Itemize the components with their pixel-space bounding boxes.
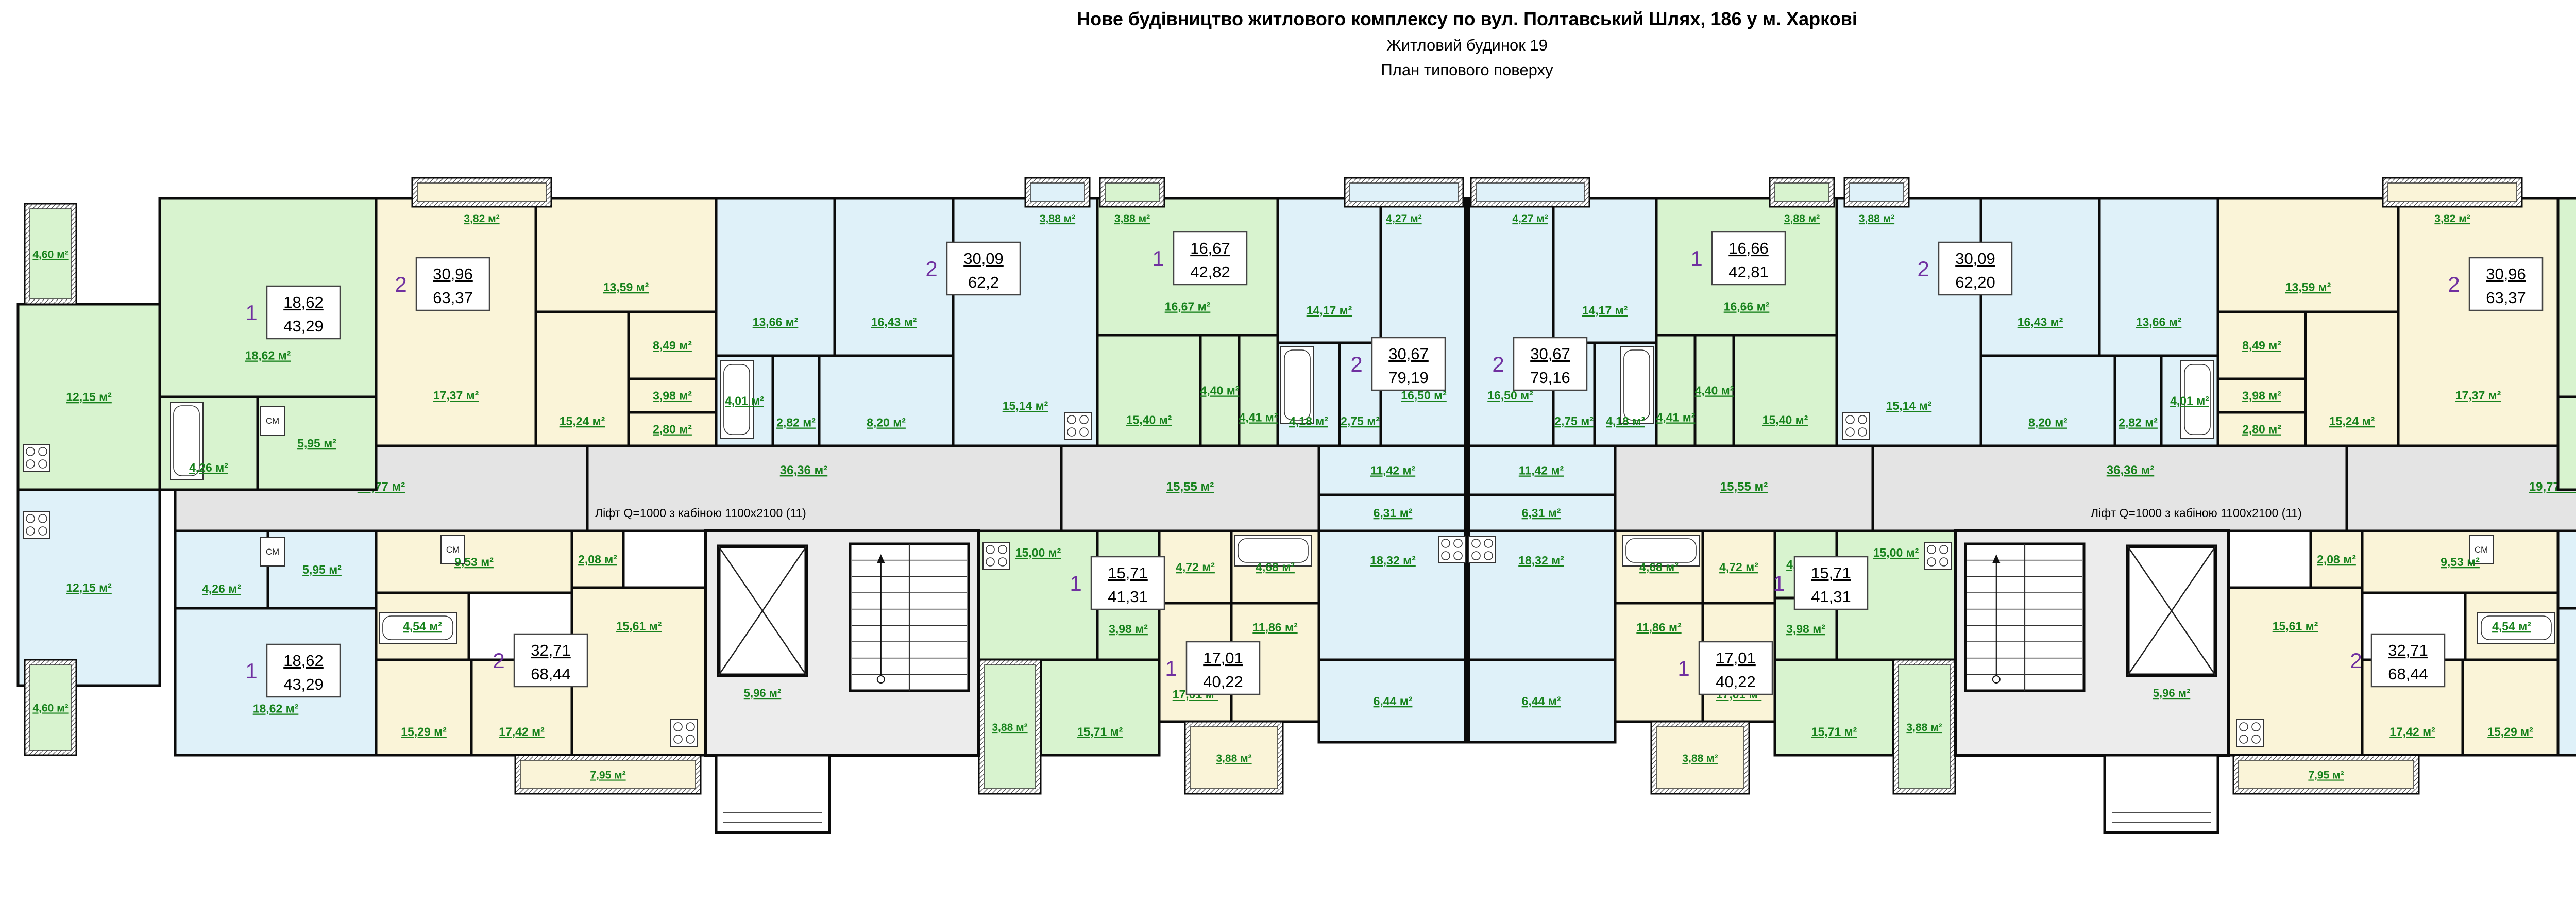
room-area-label: 2,80 м² bbox=[653, 423, 692, 436]
apartment-total-area: 68,44 bbox=[531, 665, 571, 683]
bathtub-icon bbox=[1620, 346, 1653, 424]
room bbox=[2463, 660, 2558, 755]
washing-machine-box: СМ bbox=[261, 537, 284, 566]
room-area-label: 4,41 м² bbox=[1239, 411, 1278, 424]
room-area-label: 9,53 м² bbox=[454, 555, 494, 569]
room-area-label: 4,18 м² bbox=[1289, 414, 1328, 428]
room bbox=[2398, 198, 2558, 446]
room-area-label: 8,20 м² bbox=[867, 416, 906, 429]
room bbox=[716, 198, 835, 356]
room bbox=[175, 531, 268, 608]
room-area-label: 16,43 м² bbox=[871, 315, 917, 329]
apartment-number: 2 bbox=[1350, 352, 1362, 376]
balcony-area-label: 4,27 м² bbox=[1386, 213, 1421, 225]
room-area-label: 15,14 м² bbox=[1886, 399, 1932, 412]
room-area-label: 2,82 м² bbox=[2119, 416, 2158, 429]
apartment-living-area: 17,01 bbox=[1716, 649, 1756, 667]
corridor-area-label: 15,55 м² bbox=[1720, 480, 1768, 494]
room-area-label: 18,32 м² bbox=[1370, 554, 1416, 567]
room-area-label: 18,62 м² bbox=[253, 702, 299, 715]
apartment-number: 1 bbox=[1070, 571, 1081, 595]
room-area-label: 15,40 м² bbox=[1126, 413, 1172, 427]
stove-icon bbox=[1469, 536, 1496, 563]
stove-icon bbox=[23, 511, 50, 538]
room-area-label: 6,31 м² bbox=[1522, 506, 1561, 520]
room-area-label: 11,86 м² bbox=[1252, 621, 1298, 634]
apartment-number: 1 bbox=[245, 659, 257, 683]
cm-label: СМ bbox=[266, 547, 279, 557]
balcony bbox=[1030, 183, 1084, 202]
room-area-label: 11,42 м² bbox=[1519, 464, 1564, 477]
room bbox=[1734, 335, 1837, 446]
room-area-label: 2,75 м² bbox=[1341, 414, 1380, 428]
apartment-number: 1 bbox=[1677, 656, 1689, 680]
stove-icon bbox=[671, 720, 698, 746]
room-area-label: 17,37 м² bbox=[2455, 389, 2501, 402]
balcony-area-label: 3,88 м² bbox=[1906, 722, 1942, 734]
stair-core: 5,96 м² bbox=[706, 531, 979, 833]
room-area-label: 4,54 м² bbox=[403, 620, 442, 633]
room-area-label: 4,41 м² bbox=[1656, 411, 1696, 424]
room-area-label: 4,26 м² bbox=[189, 461, 228, 474]
apartment-total-area: 62,20 bbox=[1955, 273, 1995, 291]
room-area-label: 5,95 м² bbox=[297, 437, 336, 450]
building-subtitle: Житловий будинок 19 bbox=[0, 36, 2576, 55]
apartment-number: 1 bbox=[1165, 656, 1177, 680]
room-area-label: 15,29 м² bbox=[2487, 725, 2533, 739]
apartment-total-area: 79,16 bbox=[1530, 369, 1570, 387]
room-area-label: 15,00 м² bbox=[1873, 546, 1919, 559]
apartment-total-area: 42,81 bbox=[1728, 263, 1769, 281]
room-area-label: 17,42 м² bbox=[2389, 725, 2435, 739]
room-area-label: 15,71 м² bbox=[1811, 725, 1857, 739]
apartment-number: 1 bbox=[1152, 246, 1164, 271]
room-area-label: 8,49 м² bbox=[653, 339, 692, 352]
balcony-area-label: 4,60 м² bbox=[32, 249, 68, 261]
corridor-area-label: 36,36 м² bbox=[780, 463, 827, 477]
balcony bbox=[2388, 183, 2517, 202]
balcony-area-label: 3,88 м² bbox=[1114, 213, 1150, 225]
room-area-label: 14,17 м² bbox=[1307, 304, 1352, 317]
apartment-living-area: 16,66 bbox=[1728, 239, 1769, 257]
apartment-living-area: 30,96 bbox=[2486, 265, 2526, 283]
room-area-label: 15,14 м² bbox=[1003, 399, 1048, 412]
balcony-area-label: 4,27 м² bbox=[1512, 213, 1548, 225]
room-area-label: 13,66 м² bbox=[2136, 315, 2182, 329]
apartment-total-area: 40,22 bbox=[1716, 673, 1756, 691]
apartment-living-area: 30,96 bbox=[433, 265, 473, 283]
balcony-area-label: 3,88 м² bbox=[1682, 753, 1718, 764]
balcony-area-label: 3,88 м² bbox=[1040, 213, 1075, 225]
apartment-number: 1 bbox=[245, 301, 257, 325]
room bbox=[1981, 356, 2115, 446]
room-area-label: 2,75 м² bbox=[1554, 414, 1594, 428]
room bbox=[376, 198, 536, 446]
room-area-label: 16,66 м² bbox=[1724, 300, 1770, 313]
balcony bbox=[417, 183, 546, 202]
room bbox=[2558, 531, 2576, 608]
cm-label: СМ bbox=[2475, 545, 2488, 555]
elevator-area-label: 5,96 м² bbox=[2153, 687, 2191, 700]
room-area-label: 4,18 м² bbox=[1606, 414, 1645, 428]
cm-label: СМ bbox=[446, 545, 460, 555]
bathtub-outer bbox=[1281, 346, 1314, 424]
room-area-label: 2,80 м² bbox=[2242, 423, 2281, 436]
room-area-label: 5,95 м² bbox=[302, 563, 342, 576]
apartment-living-area: 17,01 bbox=[1203, 649, 1243, 667]
room-area-label: 4,68 м² bbox=[1256, 560, 1295, 574]
room-area-label: 15,24 м² bbox=[560, 414, 605, 428]
room-area-label: 15,71 м² bbox=[1077, 725, 1123, 739]
stove-icon bbox=[1438, 536, 1465, 563]
apartment-living-area: 15,71 bbox=[1811, 564, 1851, 582]
room bbox=[2115, 356, 2161, 446]
room-area-label: 4,01 м² bbox=[725, 394, 764, 408]
room-area-label: 17,37 м² bbox=[433, 389, 479, 402]
room-area-label: 15,61 м² bbox=[2273, 620, 2318, 633]
balcony bbox=[1105, 183, 1159, 202]
room bbox=[2558, 198, 2576, 397]
entrance bbox=[716, 755, 829, 833]
apartment-total-area: 41,31 bbox=[1811, 588, 1851, 606]
balcony-area-label: 3,88 м² bbox=[1216, 753, 1251, 764]
room-area-label: 11,42 м² bbox=[1370, 464, 1416, 477]
balcony-area-label: 3,88 м² bbox=[1784, 213, 1820, 225]
apartment-number: 2 bbox=[2448, 272, 2460, 296]
room-area-label: 4,40 м² bbox=[1200, 384, 1240, 397]
room-area-label: 3,98 м² bbox=[2242, 389, 2281, 403]
room-area-label: 4,40 м² bbox=[1695, 384, 1734, 397]
room bbox=[1278, 198, 1381, 343]
apartment-number: 2 bbox=[925, 257, 937, 281]
apartment-living-area: 30,67 bbox=[1388, 345, 1429, 363]
room bbox=[1381, 198, 1467, 446]
balcony-area-label: 4,60 м² bbox=[32, 703, 68, 714]
balcony bbox=[1350, 183, 1458, 202]
apartment-living-area: 16,67 bbox=[1190, 239, 1230, 257]
room-area-label: 2,08 м² bbox=[578, 553, 617, 566]
stove-icon bbox=[23, 444, 50, 471]
room bbox=[1775, 660, 1893, 755]
room-area-label: 3,98 м² bbox=[1786, 622, 1825, 636]
apartment-total-area: 68,44 bbox=[2388, 665, 2428, 683]
apartment-number: 2 bbox=[1917, 257, 1929, 281]
apartment-total-area: 42,82 bbox=[1190, 263, 1230, 281]
room-area-label: 6,31 м² bbox=[1374, 506, 1413, 520]
room-area-label: 16,67 м² bbox=[1165, 300, 1211, 313]
room-area-label: 8,49 м² bbox=[2242, 339, 2281, 352]
room bbox=[376, 660, 471, 755]
stair-core: 5,96 м² bbox=[1955, 531, 2228, 833]
room bbox=[819, 356, 953, 446]
apartment-number: 2 bbox=[1492, 352, 1504, 376]
room bbox=[2099, 198, 2218, 356]
stove-icon bbox=[2236, 720, 2263, 746]
drawing-title: Нове будівництво житлового комплексу по … bbox=[0, 8, 2576, 30]
apartment-total-area: 43,29 bbox=[283, 675, 324, 693]
balcony-area-label: 3,88 м² bbox=[992, 722, 1027, 734]
room-area-label: 18,62 м² bbox=[245, 349, 291, 362]
room-area-label: 4,01 м² bbox=[2170, 394, 2209, 408]
balcony-area-label: 3,88 м² bbox=[1859, 213, 1894, 225]
room-area-label: 14,17 м² bbox=[1582, 304, 1628, 317]
apartment-number: 1 bbox=[1773, 571, 1785, 595]
apartment-living-area: 30,09 bbox=[963, 249, 1004, 268]
floor-subtitle: План типового поверху bbox=[0, 61, 2576, 79]
cm-label: СМ bbox=[266, 416, 279, 426]
apartment-living-area: 32,71 bbox=[2388, 641, 2428, 659]
room-area-label: 2,82 м² bbox=[776, 416, 816, 429]
room-area-label: 13,59 м² bbox=[2285, 280, 2331, 294]
room-area-label: 12,15 м² bbox=[66, 581, 112, 594]
room bbox=[773, 356, 819, 446]
stove-icon bbox=[1064, 412, 1091, 439]
room-area-label: 3,98 м² bbox=[653, 389, 692, 403]
room-area-label: 15,29 м² bbox=[401, 725, 447, 739]
room-area-label: 6,44 м² bbox=[1522, 694, 1561, 708]
room-area-label: 4,72 м² bbox=[1176, 560, 1215, 574]
balcony-area-label: 7,95 м² bbox=[590, 770, 625, 781]
stove-icon bbox=[1924, 542, 1951, 569]
room-area-label: 17,42 м² bbox=[499, 725, 545, 739]
apartment-number: 2 bbox=[2350, 648, 2362, 673]
apartment-number: 2 bbox=[493, 648, 504, 673]
apartment-living-area: 18,62 bbox=[283, 293, 324, 311]
room bbox=[2558, 397, 2576, 490]
room-area-label: 4,54 м² bbox=[2492, 620, 2531, 633]
apartment-living-area: 18,62 bbox=[283, 652, 324, 670]
room-area-label: 3,98 м² bbox=[1109, 622, 1148, 636]
room bbox=[1467, 198, 1553, 446]
room-area-label: 16,43 м² bbox=[2018, 315, 2063, 329]
apartment-living-area: 15,71 bbox=[1108, 564, 1148, 582]
apartment-number: 1 bbox=[1690, 246, 1702, 271]
room-area-label: 11,86 м² bbox=[1636, 621, 1682, 634]
room-area-label: 13,59 м² bbox=[603, 280, 649, 294]
elevator-note: Ліфт Q=1000 з кабіною 1100х2100 (11) bbox=[2091, 506, 2302, 520]
room-area-label: 8,20 м² bbox=[2028, 416, 2067, 429]
elevator-note: Ліфт Q=1000 з кабіною 1100х2100 (11) bbox=[595, 506, 806, 520]
room bbox=[1041, 660, 1159, 755]
room-area-label: 15,00 м² bbox=[1015, 546, 1061, 559]
apartment-total-area: 40,22 bbox=[1203, 673, 1243, 691]
apartment-living-area: 30,67 bbox=[1530, 345, 1570, 363]
entrance bbox=[2105, 755, 2218, 833]
apartment-total-area: 41,31 bbox=[1108, 588, 1148, 606]
apartment-living-area: 30,09 bbox=[1955, 249, 1995, 268]
corridor-area-label: 36,36 м² bbox=[2107, 463, 2154, 477]
balcony bbox=[1476, 183, 1584, 202]
room-area-label: 6,44 м² bbox=[1374, 694, 1413, 708]
balcony-area-label: 3,82 м² bbox=[464, 213, 499, 225]
room-area-label: 2,08 м² bbox=[2317, 553, 2356, 566]
stove-icon bbox=[1843, 412, 1870, 439]
room-area-label: 4,68 м² bbox=[1639, 560, 1679, 574]
balcony bbox=[1850, 183, 1904, 202]
balcony bbox=[1775, 183, 1829, 202]
apartment-number: 2 bbox=[395, 272, 406, 296]
room-area-label: 9,53 м² bbox=[2441, 555, 2480, 569]
apartment-total-area: 63,37 bbox=[433, 289, 473, 307]
apartment-living-area: 32,71 bbox=[531, 641, 571, 659]
corridor-area-label: 15,55 м² bbox=[1166, 480, 1214, 494]
balcony-area-label: 7,95 м² bbox=[2308, 770, 2344, 781]
apartment-total-area: 43,29 bbox=[283, 317, 324, 335]
room-area-label: 18,32 м² bbox=[1518, 554, 1564, 567]
floor-plan-svg: 19,77 м²19,77 м²36,36 м²36,36 м²15,55 м²… bbox=[0, 0, 2576, 896]
elevator-area-label: 5,96 м² bbox=[744, 687, 782, 700]
room-area-label: 13,66 м² bbox=[753, 315, 799, 329]
washing-machine-box: СМ bbox=[261, 406, 284, 435]
apartment-total-area: 62,2 bbox=[968, 273, 999, 291]
floor-plan-page: Нове будівництво житлового комплексу по … bbox=[0, 0, 2576, 896]
room bbox=[2218, 198, 2398, 312]
room bbox=[536, 198, 716, 312]
room-area-label: 15,61 м² bbox=[616, 620, 662, 633]
stove-icon bbox=[983, 542, 1010, 569]
bathtub-outer bbox=[1620, 346, 1653, 424]
room bbox=[1656, 335, 1695, 446]
room-area-label: 15,24 м² bbox=[2329, 414, 2375, 428]
room bbox=[2558, 608, 2576, 755]
room-area-label: 12,15 м² bbox=[66, 390, 112, 404]
bathtub-icon bbox=[1281, 346, 1314, 424]
apartment-total-area: 63,37 bbox=[2486, 289, 2526, 307]
room-area-label: 4,72 м² bbox=[1719, 560, 1758, 574]
room-area-label: 4,26 м² bbox=[202, 582, 241, 595]
room bbox=[1239, 335, 1278, 446]
room bbox=[1097, 335, 1200, 446]
balcony-area-label: 3,82 м² bbox=[2434, 213, 2470, 225]
room-area-label: 15,40 м² bbox=[1762, 413, 1808, 427]
room bbox=[1553, 198, 1656, 343]
apartment-total-area: 79,19 bbox=[1388, 369, 1429, 387]
